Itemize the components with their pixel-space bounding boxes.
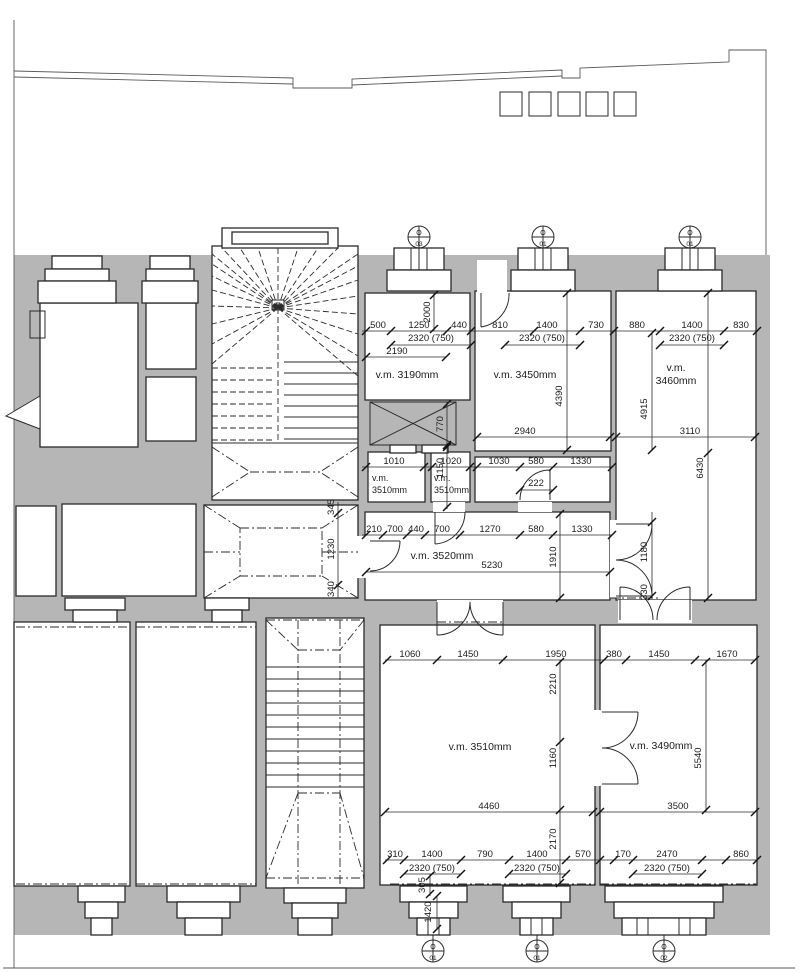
dim-label: 1030 — [488, 456, 509, 467]
window-mark ers-bottom: O 01 O 01 O 02 — [422, 935, 675, 962]
dim-label: 380 — [606, 649, 622, 660]
dim-label: 305 — [417, 877, 428, 893]
room-bottom-left-2 — [136, 622, 256, 886]
room-3190 — [365, 293, 470, 400]
floor-plan-sheet: 500 1250 440 810 1400 730 880 1400 830 2… — [0, 0, 800, 973]
dim-label: 1330 — [570, 456, 591, 467]
dim-label: 2000 — [422, 301, 433, 322]
dim-label: 830 — [733, 320, 749, 331]
marker-letter: O — [430, 944, 436, 951]
dim-label: 440 — [451, 320, 467, 331]
room-small-2 — [146, 377, 196, 441]
dim-label: 1670 — [716, 649, 737, 660]
dim-label: 1270 — [479, 524, 500, 535]
skylight-squares — [500, 92, 636, 116]
marker-letter: O — [416, 230, 422, 237]
dim-label: 860 — [733, 849, 749, 860]
dim-label: 1450 — [648, 649, 669, 660]
dim-label: 2320 (750) — [409, 863, 455, 874]
dim-label: 4390 — [554, 385, 565, 406]
dim-label: 1950 — [545, 649, 566, 660]
marker-number: 03 — [415, 241, 423, 248]
dim-label: 700 — [387, 524, 403, 535]
room-label: 3460mm — [656, 375, 697, 387]
room-top-left — [40, 303, 138, 447]
dim-label: 1400 — [681, 320, 702, 331]
floor-plan: 500 1250 440 810 1400 730 880 1400 830 2… — [0, 0, 800, 973]
dim-label: 1400 — [421, 849, 442, 860]
dim-label: 700 — [434, 524, 450, 535]
marker-letter: O — [661, 944, 667, 951]
dim-label: 1400 — [536, 320, 557, 331]
dim-label: 222 — [528, 478, 544, 489]
dim-label: 2190 — [386, 346, 407, 357]
dim-label: 790 — [477, 849, 493, 860]
dim-label: 310 — [387, 849, 403, 860]
dim-label: 1450 — [457, 649, 478, 660]
marker-number: 01 — [533, 955, 541, 962]
dim-label: 440 — [408, 524, 424, 535]
marker-letter: O — [534, 944, 540, 951]
dim-label: 1060 — [399, 649, 420, 660]
dim-label: 880 — [629, 320, 645, 331]
stairwell-lower — [266, 618, 364, 888]
dim-label: 770 — [435, 416, 446, 432]
room-label: v.m. 3510mm — [449, 741, 512, 753]
marker-number: 01 — [429, 955, 437, 962]
courtyard-boundary — [14, 50, 766, 255]
marker-number: 01 — [539, 241, 547, 248]
dim-label: 500 — [370, 320, 386, 331]
dim-label: 2320 (750) — [514, 863, 560, 874]
dim-label: 345 — [326, 499, 337, 515]
dim-label: 5540 — [693, 747, 704, 768]
dim-label: 580 — [528, 456, 544, 467]
dim-label: 4915 — [639, 398, 650, 419]
dim-label: 580 — [528, 524, 544, 535]
marker-letter: O — [540, 230, 546, 237]
dim-label: 810 — [492, 320, 508, 331]
room-label: v.m. — [434, 473, 450, 483]
dim-label: 1180 — [639, 542, 650, 562]
room-bottom-left-1 — [14, 622, 130, 886]
marker-letter: O — [687, 230, 693, 237]
room-small-1 — [146, 303, 196, 369]
dim-label: 1910 — [548, 546, 559, 567]
dim-label: 5230 — [481, 560, 502, 571]
room-label: v.m. 3490mm — [630, 740, 693, 752]
dim-label: 2940 — [514, 426, 535, 437]
room-label: 3510mm — [434, 485, 469, 495]
dim-label: 2320 (750) — [408, 333, 454, 344]
dim-label: 1420 — [423, 901, 434, 922]
dim-label: 4460 — [478, 801, 499, 812]
marker-number: 02 — [660, 955, 668, 962]
dim-label: 1400 — [526, 849, 547, 860]
marker-number: 01 — [686, 241, 694, 248]
room-label: v.m. 3190mm — [376, 369, 439, 381]
dim-label: 6430 — [695, 457, 706, 478]
dim-label: 1230 — [326, 538, 337, 559]
dim-label: 2320 (750) — [644, 863, 690, 874]
dim-label: 2320 (750) — [519, 333, 565, 344]
room-label: 3510mm — [372, 485, 407, 495]
room-mid-left-2 — [62, 504, 196, 596]
dim-label: 330 — [639, 584, 650, 600]
room-label: v.m. — [666, 362, 685, 374]
dim-label: 210 — [366, 524, 382, 535]
dim-label: 3110 — [680, 426, 700, 437]
dim-label: 170 — [615, 849, 631, 860]
room-label: v.m. — [372, 473, 388, 483]
dim-label: 1010 — [383, 456, 404, 467]
dim-label: 340 — [326, 581, 337, 597]
dim-label: 2320 (750) — [669, 333, 715, 344]
room-3510-c — [380, 625, 595, 885]
dim-label: 1330 — [571, 524, 592, 535]
dim-label: 2170 — [548, 828, 559, 849]
room-label: v.m. 3520mm — [411, 550, 474, 562]
dim-label: 2470 — [656, 849, 677, 860]
room-mid-left-1 — [16, 506, 56, 596]
dim-label: 3500 — [667, 801, 688, 812]
dim-label: 570 — [575, 849, 591, 860]
dim-label: 730 — [588, 320, 604, 331]
dim-label: 1160 — [548, 748, 559, 768]
room-label: v.m. 3450mm — [494, 369, 557, 381]
dim-label: 2210 — [548, 673, 559, 694]
